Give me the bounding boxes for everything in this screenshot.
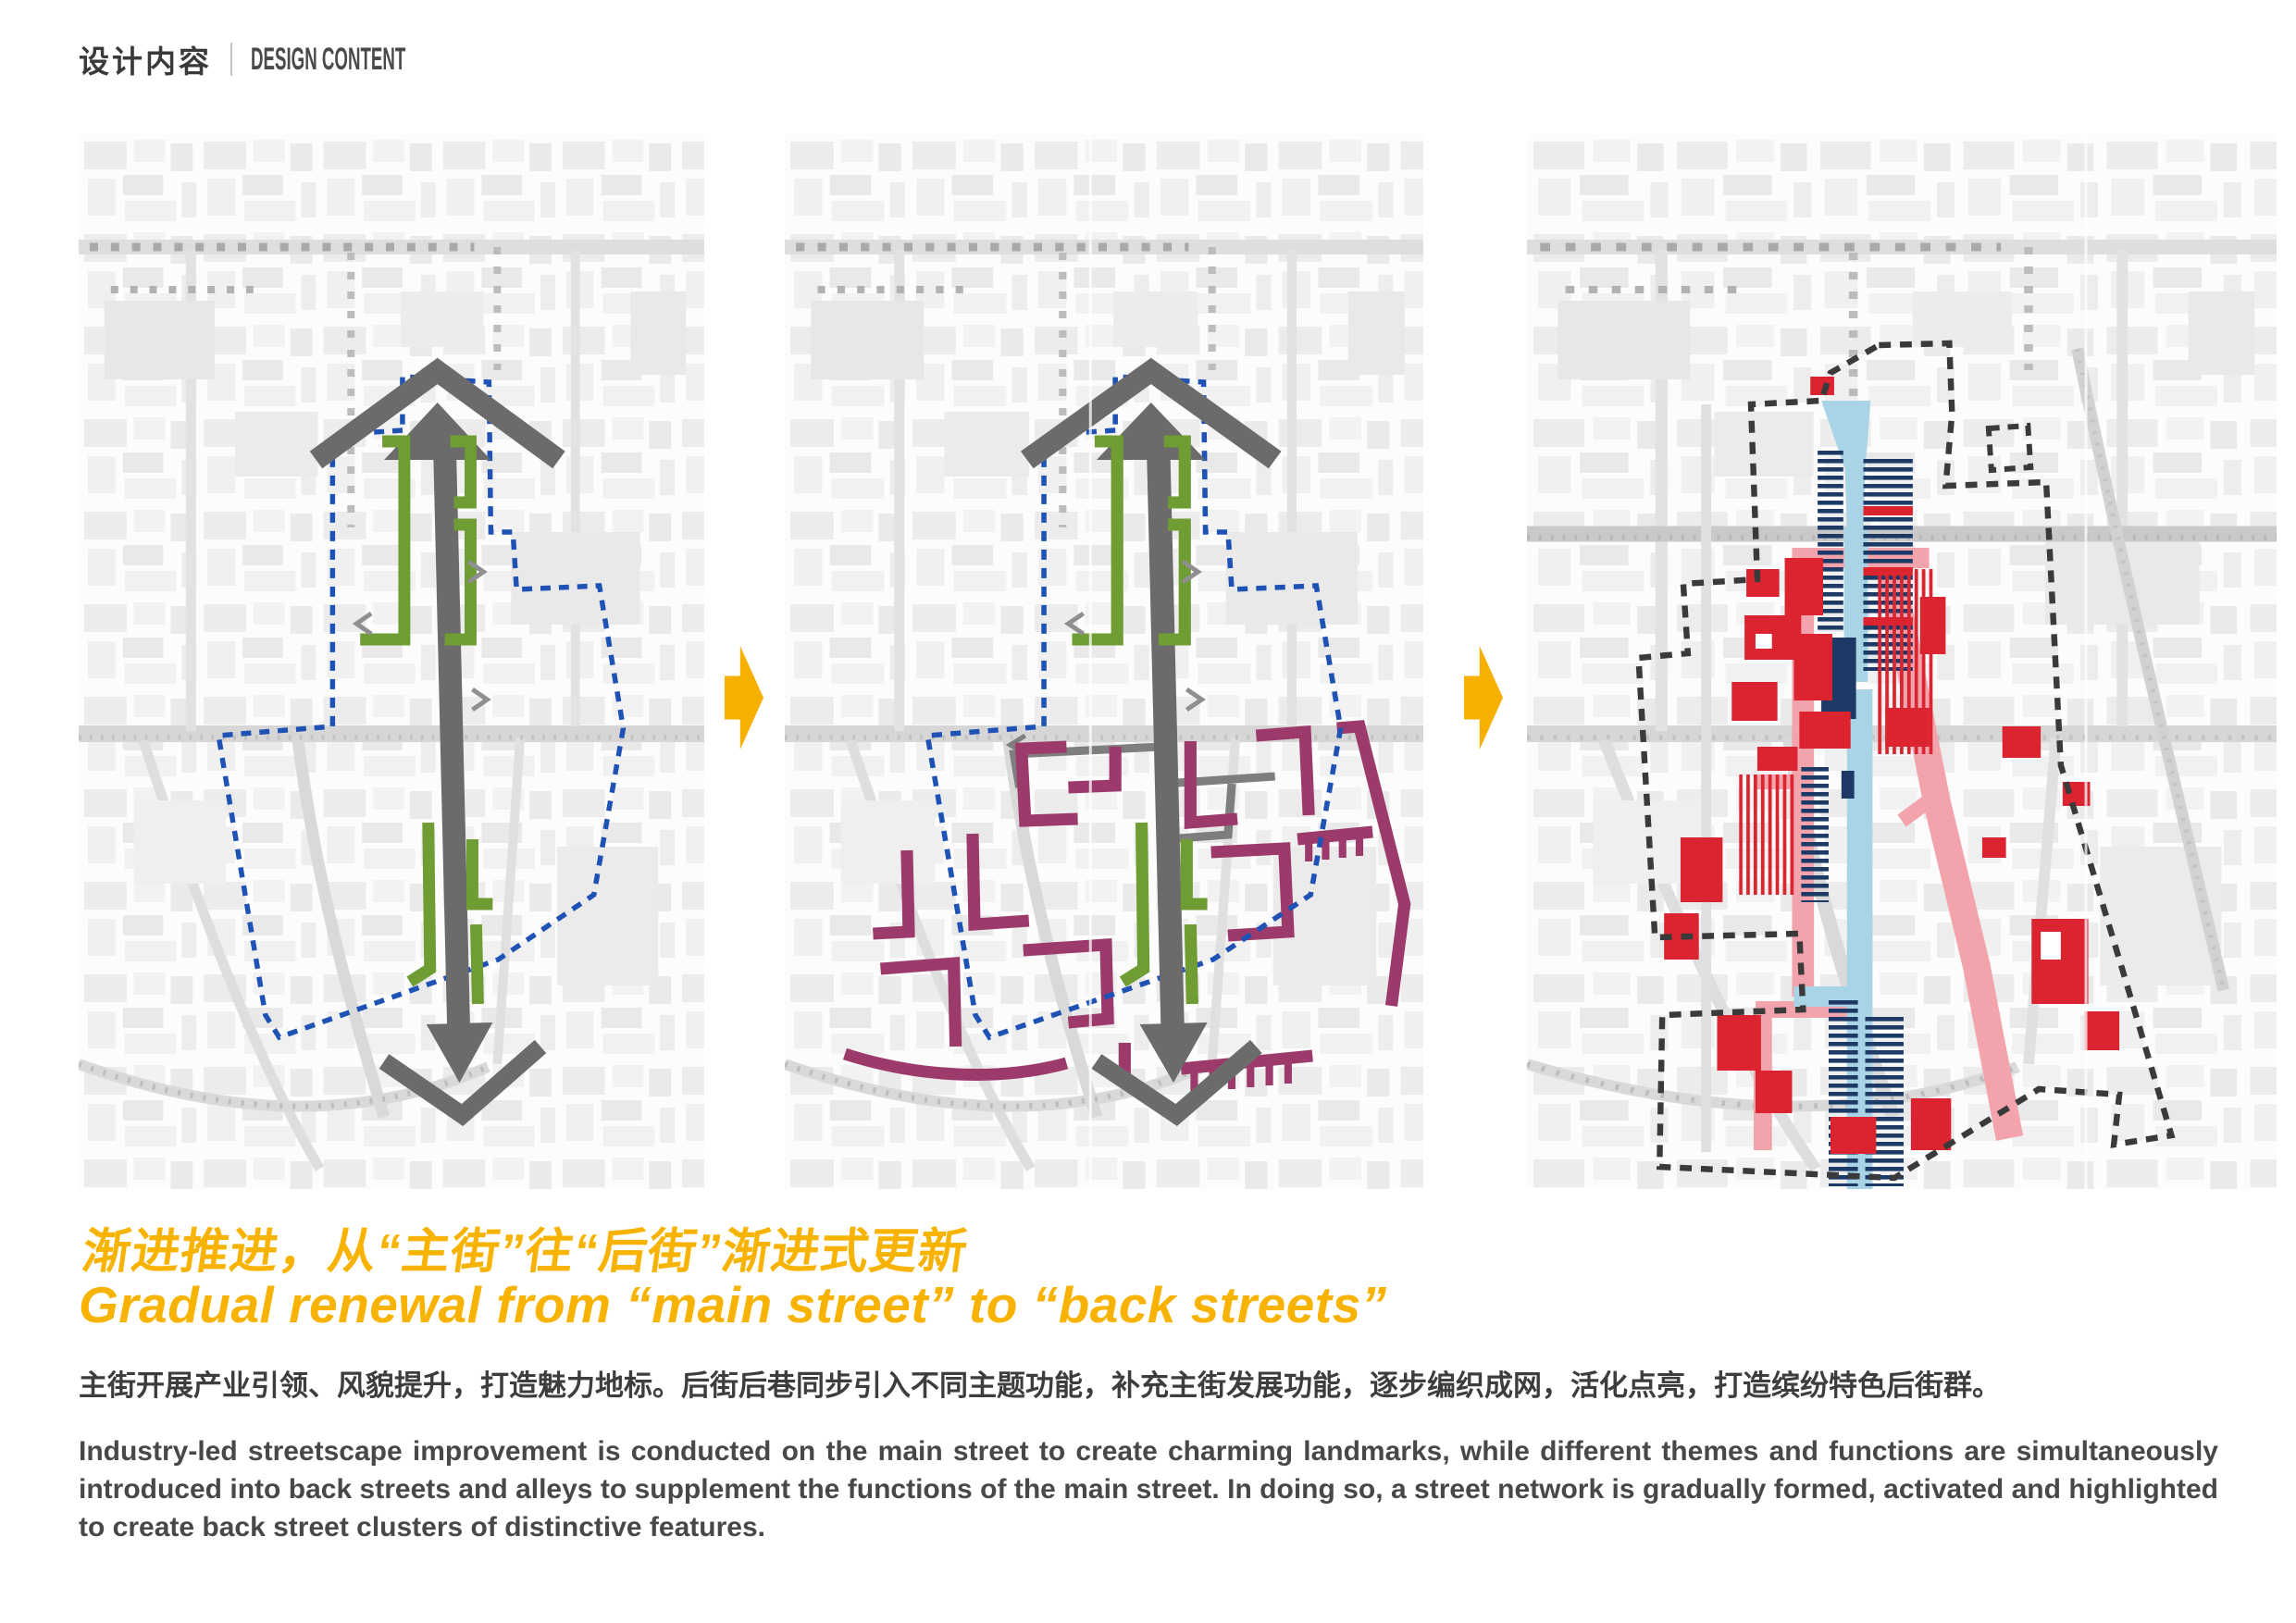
map-stage-3-renewal-plan xyxy=(1527,134,2277,1189)
page-seam xyxy=(2085,134,2088,1189)
page-header: 设计内容 DESIGN CONTENT xyxy=(79,37,532,81)
right-arrow-icon xyxy=(725,646,763,750)
section-title-en: Gradual renewal from “main street” to “b… xyxy=(79,1275,1387,1334)
body-paragraph-zh: 主街开展产业引领、风貌提升，打造魅力地标。后街后巷同步引入不同主题功能，补充主街… xyxy=(79,1368,2218,1405)
section-title-zh: 渐进推进，从“主街”往“后街”渐进式更新 xyxy=(79,1212,974,1282)
page-seam xyxy=(1089,134,1092,1189)
map-stage-2-back-streets xyxy=(785,134,1423,1189)
body-paragraph-en: Industry-led streetscape improvement is … xyxy=(79,1432,2218,1546)
right-arrow-icon xyxy=(1464,646,1503,750)
header-title-en: DESIGN CONTENT xyxy=(251,42,405,78)
header-divider xyxy=(230,43,232,76)
map-stage-1-main-street xyxy=(79,134,704,1189)
header-title-zh: 设计内容 xyxy=(79,37,212,81)
